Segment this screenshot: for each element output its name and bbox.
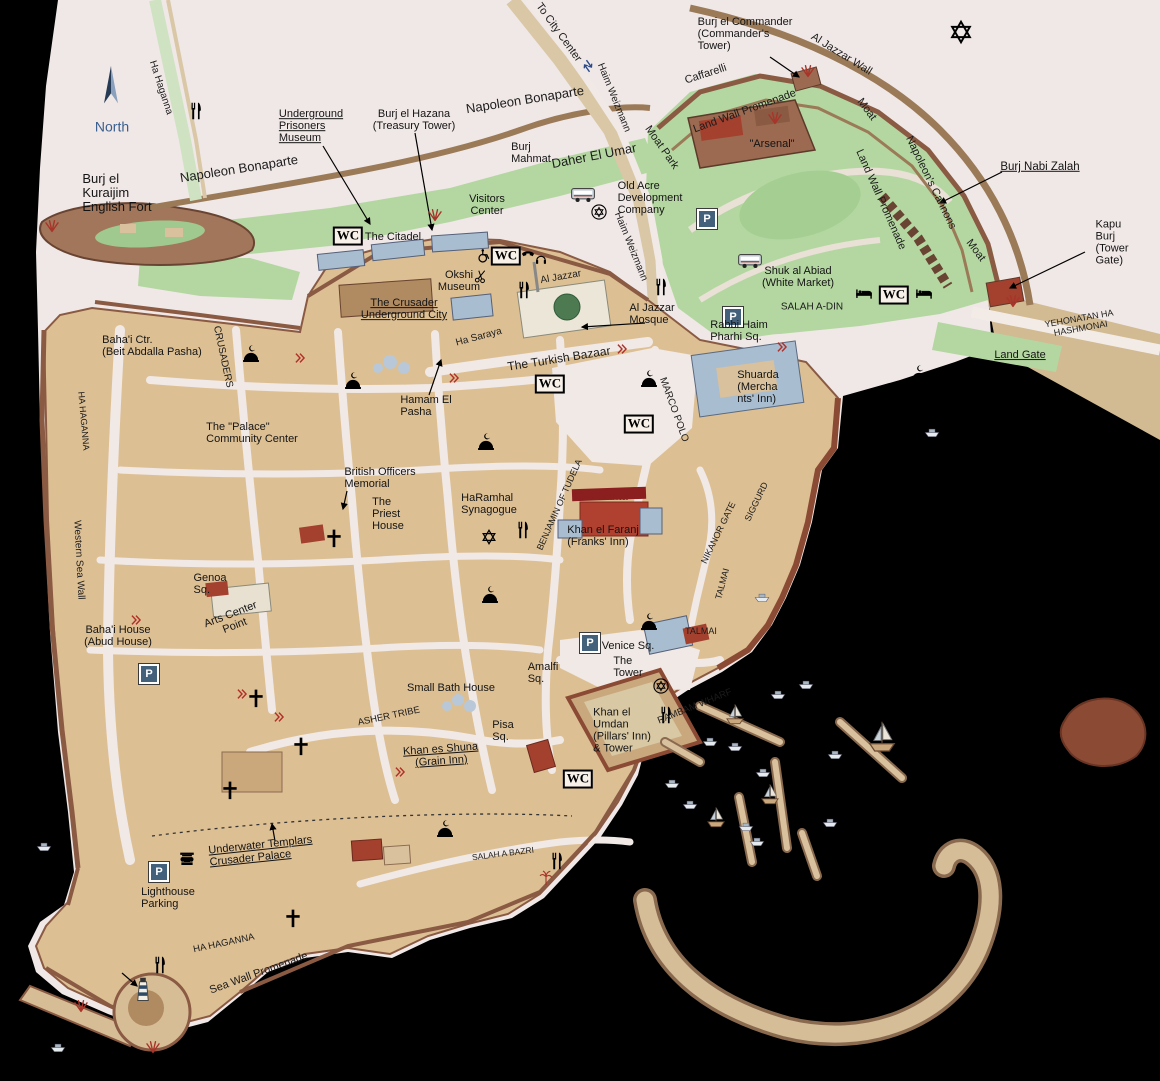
label-british-officers-memorial: British Officers Memorial [344, 467, 415, 491]
dome-icon [343, 372, 363, 392]
label-priest-house: The Priest House [372, 497, 404, 533]
label-old-acre-development: Old Acre Development Company [618, 181, 683, 217]
compass-label: North [95, 119, 129, 134]
chev-icon [448, 372, 461, 385]
fan-icon [800, 62, 817, 79]
fork-icon [515, 281, 533, 299]
parking-icon: P [697, 209, 717, 229]
label-burj-el-hazana: Burj el Hazana (Treasury Tower) [373, 109, 456, 133]
label-al-jazzar-mosque: Al Jazzar Mosque [629, 303, 674, 327]
label-bahai-house: Baha'i House (Abud House) [84, 625, 152, 649]
star6-icon [481, 529, 498, 546]
label-arsenal: "Arsenal" [749, 139, 794, 151]
bed-icon [916, 285, 933, 302]
chev-icon [236, 688, 249, 701]
label-shuk-al-abiad: Shuk al Abiad (White Market) [762, 266, 834, 290]
compass-icon [91, 65, 131, 105]
label-haramhal-synagogue: HaRamhal Synagogue [461, 493, 517, 517]
fan-icon [767, 109, 784, 126]
label-the-citadel: The Citadel [365, 232, 421, 244]
boat-icon [769, 684, 787, 702]
parking-icon: P [139, 664, 159, 684]
boat-icon [797, 674, 815, 692]
sailboat-icon [863, 719, 902, 758]
label-shuarda: Shuarda (Mercha nts' Inn) [737, 370, 779, 406]
chev-icon [616, 343, 629, 356]
boat-icon [748, 831, 766, 849]
cross-icon [220, 780, 240, 800]
label-tara-santa: Tara Santa [572, 491, 628, 503]
wc-icon: WC [624, 415, 654, 434]
boat-icon [681, 794, 699, 812]
bed-icon [856, 285, 873, 302]
fork-icon [652, 278, 670, 296]
wheelchair-icon [477, 249, 492, 264]
dome-icon [241, 345, 261, 365]
sailboat-icon [703, 805, 729, 831]
boat-icon [726, 736, 744, 754]
fork-icon [151, 956, 169, 974]
label-khan-el-umdan: Khan el Umdan (Pillars' Inn) & Tower [593, 707, 651, 755]
label-venice-sq: Venice Sq. [602, 641, 655, 653]
column-icon [178, 850, 196, 868]
palm-icon [538, 870, 554, 886]
label-bahai-ctr: Baha'i Ctr. (Beit Abdalla Pasha) [102, 335, 202, 359]
label-visitors-center: Visitors Center [469, 194, 505, 218]
label-rabbi-haim-pharhi-sq: Rabbi Haim Pharhi Sq. [710, 320, 767, 344]
dome-icon [435, 820, 455, 840]
cross-icon [283, 908, 303, 928]
island-rock [1061, 698, 1146, 766]
wc-icon: WC [491, 247, 521, 266]
label-kapu-burj: Kapu Burj (Tower Gate) [1096, 219, 1139, 267]
cross-icon [246, 688, 266, 708]
dome-icon [480, 586, 500, 606]
street-talmai: TALMAI [685, 627, 717, 637]
wc-icon: WC [879, 286, 909, 305]
cross-icon [291, 736, 311, 756]
umbrella-icon [920, 373, 935, 388]
label-underground-prisoners-museum[interactable]: Underground Prisoners Museum [279, 109, 343, 145]
bus-icon [737, 247, 763, 273]
starCircle-icon [591, 204, 608, 221]
boat-icon [754, 762, 772, 780]
label-the-tower: The Tower [613, 656, 642, 680]
star6-icon [948, 19, 974, 45]
wc-icon: WC [333, 227, 363, 246]
sailboat-icon [722, 702, 748, 728]
fan-icon [427, 206, 444, 223]
label-burj-el-kuraijim: Burj el Kuraijim English Fort [82, 172, 151, 214]
phone-icon [521, 249, 536, 264]
boat-icon [35, 836, 53, 854]
sailboat-icon [757, 782, 783, 808]
old-acre-map: WCWCWCWCWCWCPPPPP NorthHa HagannaBurj el… [0, 0, 1160, 1081]
parking-icon: P [580, 633, 600, 653]
label-burj-nabi-zalah[interactable]: Burj Nabi Zalah [1000, 161, 1079, 173]
label-small-bath-house: Small Bath House [407, 683, 495, 695]
boat-icon [701, 731, 719, 749]
chev-icon [294, 352, 307, 365]
parking-icon: P [149, 862, 169, 882]
label-palace-community-center: The "Palace" Community Center [206, 422, 298, 446]
label-burj-mahmat: Burj Mahmat [511, 142, 551, 166]
label-pisa-sq: Pisa Sq. [492, 720, 513, 744]
chev-icon [273, 711, 286, 724]
boat-icon [826, 744, 844, 762]
fan-icon [73, 997, 90, 1014]
lighthouse-icon [129, 976, 157, 1004]
headphones-icon [535, 253, 548, 266]
wc-icon: WC [535, 375, 565, 394]
fan-icon [1005, 292, 1022, 309]
boat-icon [753, 587, 771, 605]
label-burj-el-commander: Burj el Commander (Commander's Tower) [698, 17, 793, 53]
fan-icon [145, 1038, 162, 1055]
dome-icon [639, 613, 659, 633]
dome-icon [476, 433, 496, 453]
label-hamam-el-pasha: Hamam El Pasha [400, 395, 451, 419]
label-khan-el-faranj: Khan el Faranj (Franks' Inn) [567, 525, 639, 549]
fork-icon [187, 102, 205, 120]
label-crusader-underground-city[interactable]: The Crusader Underground City [361, 298, 447, 322]
fork-icon [514, 521, 532, 539]
boat-icon [663, 773, 681, 791]
label-okshi-museum: Okshi Museum [438, 270, 480, 294]
label-lighthouse-parking: Lighthouse Parking [141, 887, 195, 911]
boat-icon [821, 812, 839, 830]
fork-icon [548, 852, 566, 870]
cross-icon [324, 528, 344, 548]
fan-icon [44, 217, 61, 234]
chev-icon [776, 341, 789, 354]
boat-icon [923, 422, 941, 440]
street-salah-a-din: SALAH A-DIN [781, 303, 843, 314]
label-land-gate[interactable]: Land Gate [994, 350, 1045, 362]
boat-icon [49, 1037, 67, 1055]
label-amalfi-sq: Amalfi Sq. [528, 662, 559, 686]
wc-icon: WC [563, 770, 593, 789]
starCircle-icon [653, 678, 670, 695]
label-genoa-sq: Genoa Sq. [193, 573, 226, 597]
